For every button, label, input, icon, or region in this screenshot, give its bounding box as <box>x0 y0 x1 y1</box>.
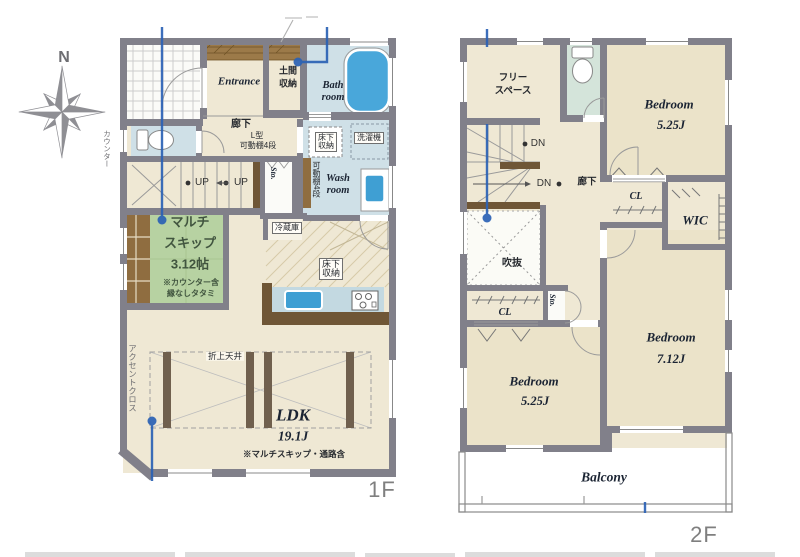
hallway-label: 廊下 <box>231 120 251 130</box>
floor1-label: 1F <box>368 479 396 501</box>
bathtub <box>346 50 389 112</box>
floorplan-graphics <box>0 0 800 557</box>
hallway-shelf-note-1: L型 <box>251 132 263 140</box>
hallway-2f-label: 廊下 <box>577 177 596 187</box>
multi-skip-note-2: 縁なしタタミ <box>167 290 215 298</box>
free-space-label-1: フリー <box>499 73 528 83</box>
toilet-1f <box>137 130 174 150</box>
dn-label-1: DN <box>531 139 545 149</box>
floor2-label: 2F <box>690 524 718 546</box>
movable-shelf-label: 可動棚4段 <box>312 161 320 197</box>
room-entrance-label: Entrance <box>218 77 260 88</box>
bedroom1-size-label: 5.25J <box>657 119 685 132</box>
room-bath-label-1: Bath <box>322 81 343 92</box>
hallway-shelf-note-2: 可動棚4段 <box>240 142 276 150</box>
closet-1-label: CL <box>630 192 643 202</box>
multi-skip-label-1: マルチ <box>170 216 209 229</box>
room-wash-label-1: Wash <box>326 174 350 185</box>
compass-north-label: N <box>58 50 70 66</box>
storage-sto-label-2f: Sto. <box>548 294 556 307</box>
wash-shelf <box>303 158 311 208</box>
dn-label-2: DN <box>537 179 551 189</box>
bedroom3-floor <box>607 230 725 426</box>
room-wash-label-2: room <box>327 186 350 197</box>
storage-sto-label-1f: Sto. <box>269 167 277 180</box>
multi-skip-note-1: ※カウンター含 <box>163 279 219 287</box>
kitchen-counter-edge <box>262 312 389 325</box>
up-label-1: UP <box>195 178 209 188</box>
multi-skip-label-2: スキップ <box>164 237 216 250</box>
wic-label: WIC <box>682 214 707 227</box>
multi-skip-size-label: 3.12帖 <box>171 258 209 271</box>
bedroom3-size-label: 7.12J <box>657 353 685 366</box>
compass-rose-icon <box>19 66 105 158</box>
underfloor-storage-box-1: 床下 収納 <box>315 132 337 152</box>
bedroom2-label: Bedroom <box>509 375 558 388</box>
balcony-label: Balcony <box>581 470 627 484</box>
accent-cloth-label: アクセントクロス <box>128 344 137 412</box>
washer-box-label: 洗濯機 <box>354 132 384 144</box>
room-bath-label-2: room <box>322 93 345 104</box>
floorplan-page: N Entrance 土間 収納 Bath room 廊下 L型 可動棚4段 床… <box>0 0 800 557</box>
bedroom2-size-label: 5.25J <box>521 395 549 408</box>
wash-sink <box>361 169 389 211</box>
underfloor-storage-box-2: 床下 収納 <box>319 258 343 280</box>
doma-storage-label-2: 収納 <box>279 80 297 89</box>
fridge-box-label: 冷蔵庫 <box>272 222 302 234</box>
bottom-strip <box>25 552 775 557</box>
toilet-2f <box>572 47 593 83</box>
room-ldk-label: LDK <box>276 407 310 424</box>
stove-icon <box>352 291 378 310</box>
ldk-size-label: 19.1J <box>278 429 308 443</box>
up-label-2: UP <box>234 178 248 188</box>
kitchen-sink <box>285 291 322 309</box>
free-space-label-2: スペース <box>495 86 532 96</box>
bedroom1-label: Bedroom <box>644 98 693 111</box>
ldk-note-label: ※マルチスキップ・通路含 <box>243 450 345 459</box>
void-label: 吹抜 <box>502 259 522 269</box>
closet-2-label: CL <box>499 308 512 318</box>
bedroom3-label: Bedroom <box>646 331 695 344</box>
doma-storage-label-1: 土間 <box>279 67 297 76</box>
coffered-ceiling-label: 折上天井 <box>206 352 244 361</box>
counter-note-label: カウンター <box>103 130 111 168</box>
